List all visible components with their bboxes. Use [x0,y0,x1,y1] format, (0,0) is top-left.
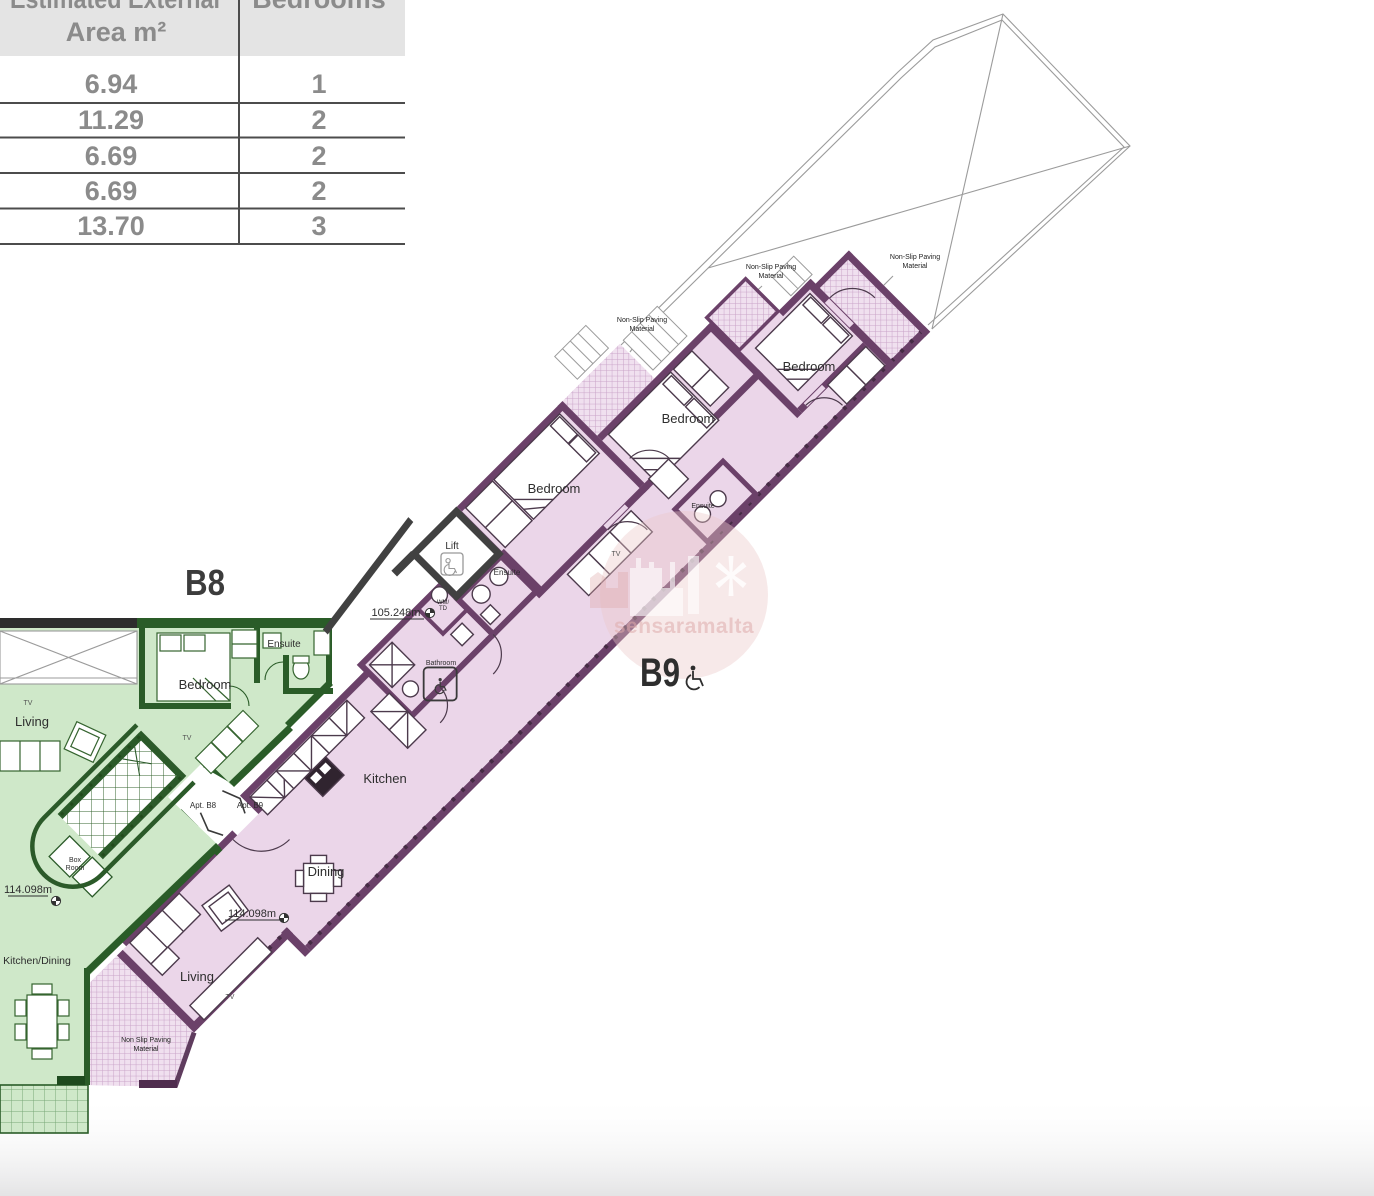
svg-text:TV: TV [24,700,33,707]
svg-text:Kitchen/Dining: Kitchen/Dining [3,955,71,967]
svg-text:Non-Slip Paving: Non-Slip Paving [617,317,667,324]
svg-text:1: 1 [311,69,326,99]
svg-text:2: 2 [311,105,326,135]
svg-text:B8: B8 [185,562,225,603]
svg-text:13.70: 13.70 [77,211,145,241]
svg-text:Living: Living [180,969,214,984]
svg-text:Bedroom: Bedroom [528,481,581,496]
svg-text:TV: TV [226,994,235,1001]
svg-text:Material: Material [630,326,655,333]
svg-text:Ensuite: Ensuite [691,503,714,510]
svg-text:Dining: Dining [308,864,345,879]
svg-text:6.69: 6.69 [85,176,138,206]
svg-text:Room: Room [66,865,85,872]
svg-text:114.098m: 114.098m [228,908,276,920]
svg-text:Bedroom: Bedroom [783,359,836,374]
svg-text:sensaramalta: sensaramalta [614,615,754,638]
svg-text:Lift: Lift [445,541,459,552]
svg-text:TD: TD [439,606,448,612]
svg-text:6.69: 6.69 [85,141,138,171]
svg-text:TV: TV [183,735,192,742]
svg-text:TV: TV [612,551,621,558]
svg-text:114.098m: 114.098m [4,884,52,896]
svg-text:Bedroom: Bedroom [662,411,715,426]
svg-text:Box: Box [69,857,82,864]
svg-text:Area m²: Area m² [66,17,167,47]
svg-text:Bedroom: Bedroom [179,677,232,692]
svg-text:Material: Material [903,263,928,270]
svg-text:Apt. B8: Apt. B8 [190,801,217,810]
svg-text:6.94: 6.94 [85,69,138,99]
svg-text:2: 2 [311,176,326,206]
svg-text:Ensuite: Ensuite [267,639,301,650]
svg-text:Estimated External: Estimated External [10,0,220,14]
svg-text:Bedrooms: Bedrooms [252,0,386,14]
svg-text:Non Slip Paving: Non Slip Paving [121,1037,171,1044]
svg-text:2: 2 [311,141,326,171]
svg-text:B9: B9 [640,651,680,695]
svg-text:11.29: 11.29 [78,105,144,135]
svg-text:Material: Material [134,1046,159,1053]
svg-text:Non-Slip Paving: Non-Slip Paving [746,264,796,271]
svg-text:105.248m: 105.248m [372,607,421,619]
svg-text:Bathroom: Bathroom [426,660,457,667]
svg-text:Non-Slip Paving: Non-Slip Paving [890,254,940,261]
svg-text:Living: Living [15,714,49,729]
svg-text:Material: Material [759,273,784,280]
svg-text:3: 3 [311,211,326,241]
svg-text:Apt. B9: Apt. B9 [237,801,264,810]
svg-text:Kitchen: Kitchen [363,771,406,786]
svg-text:Ensuite: Ensuite [494,568,521,577]
